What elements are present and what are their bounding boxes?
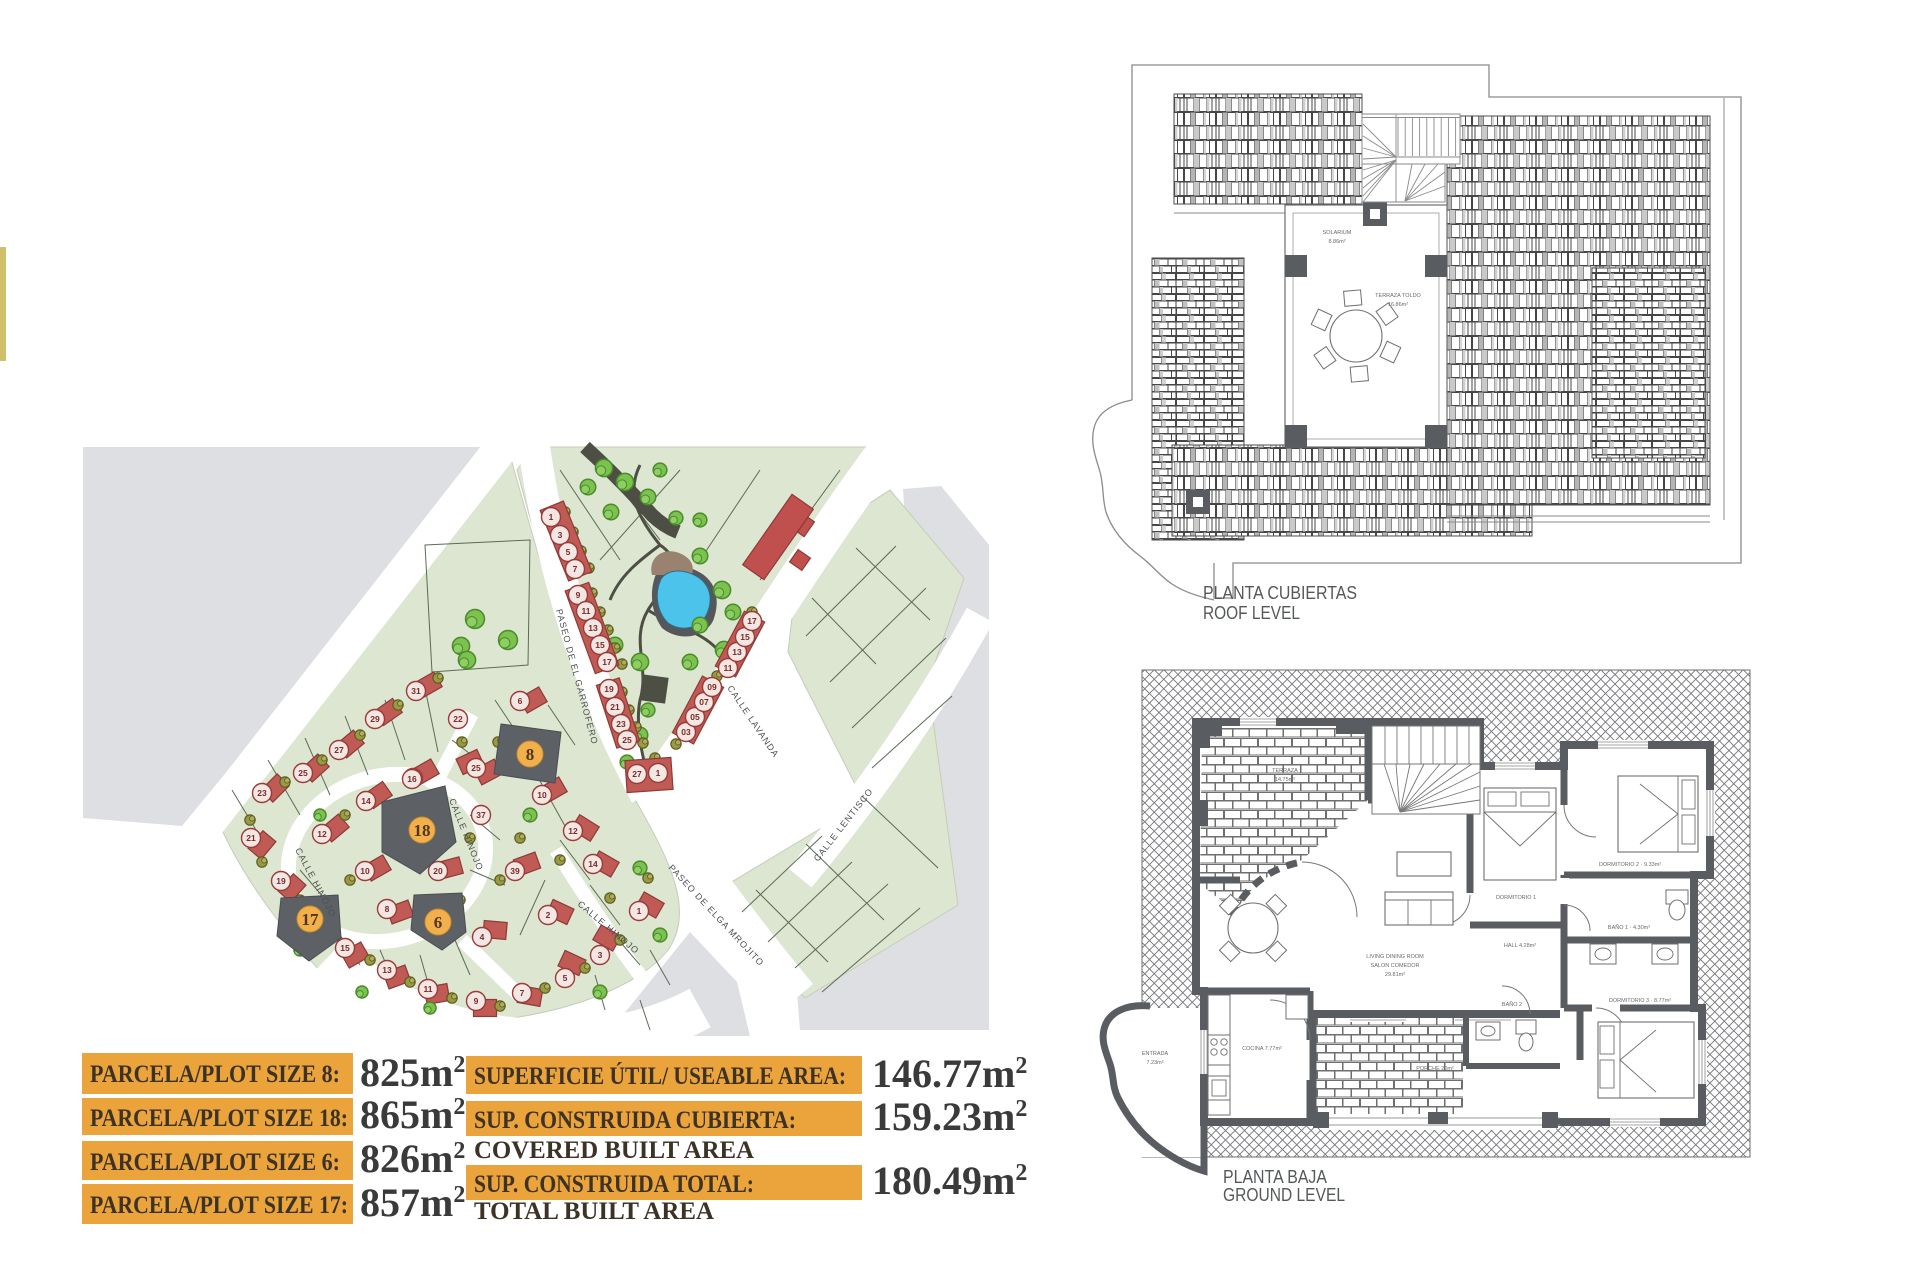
svg-text:29.81m²: 29.81m²: [1385, 972, 1405, 978]
svg-text:8: 8: [385, 904, 390, 914]
svg-text:22: 22: [453, 714, 463, 724]
svg-text:13: 13: [732, 647, 742, 657]
svg-text:7: 7: [573, 564, 578, 574]
svg-text:3: 3: [558, 530, 563, 540]
svg-text:COCINA 7.77m²: COCINA 7.77m²: [1242, 1046, 1282, 1052]
svg-text:23: 23: [257, 788, 267, 798]
svg-text:LIVING DINING ROOM: LIVING DINING ROOM: [1366, 954, 1424, 960]
svg-text:19: 19: [276, 876, 286, 886]
svg-text:1: 1: [637, 906, 642, 916]
svg-text:6: 6: [434, 913, 443, 932]
svg-text:14: 14: [588, 859, 598, 869]
svg-text:7.23m²: 7.23m²: [1146, 1060, 1163, 1066]
svg-text:5: 5: [563, 973, 568, 983]
svg-text:146.77m2: 146.77m2: [872, 1051, 1027, 1096]
svg-text:6: 6: [518, 696, 523, 706]
svg-text:20: 20: [433, 866, 443, 876]
svg-text:19: 19: [604, 684, 614, 694]
svg-text:PLANTA BAJA: PLANTA BAJA: [1223, 1167, 1327, 1187]
svg-text:13: 13: [382, 965, 392, 975]
svg-text:10: 10: [537, 790, 547, 800]
svg-text:09: 09: [707, 682, 717, 692]
svg-text:15: 15: [740, 632, 750, 642]
svg-text:39: 39: [510, 866, 520, 876]
svg-text:13: 13: [588, 623, 598, 633]
svg-text:31: 31: [411, 686, 421, 696]
svg-text:15: 15: [595, 640, 605, 650]
svg-text:5: 5: [566, 547, 571, 557]
svg-text:COVERED BUILT AREA: COVERED BUILT AREA: [474, 1137, 754, 1164]
svg-text:17: 17: [302, 910, 320, 929]
svg-text:825m2: 825m2: [360, 1050, 465, 1095]
svg-text:159.23m2: 159.23m2: [872, 1094, 1027, 1139]
svg-text:TERRAZA TOLDO: TERRAZA TOLDO: [1375, 293, 1421, 299]
svg-text:BAÑO 2: BAÑO 2: [1502, 1001, 1522, 1008]
svg-text:865m2: 865m2: [360, 1092, 465, 1137]
svg-text:ROOF LEVEL: ROOF LEVEL: [1203, 603, 1300, 623]
svg-text:05: 05: [690, 712, 700, 722]
svg-text:DORMITORIO 3 · 8.77m²: DORMITORIO 3 · 8.77m²: [1609, 998, 1671, 1004]
svg-text:21: 21: [610, 702, 620, 712]
svg-text:GROUND LEVEL: GROUND LEVEL: [1223, 1185, 1345, 1205]
svg-text:17: 17: [747, 616, 757, 626]
svg-text:PARCELA/PLOT SIZE 8:: PARCELA/PLOT SIZE 8:: [90, 1061, 340, 1088]
svg-text:12: 12: [568, 826, 578, 836]
svg-text:180.49m2: 180.49m2: [872, 1158, 1027, 1203]
svg-text:PARCELA/PLOT SIZE 18:: PARCELA/PLOT SIZE 18:: [90, 1105, 348, 1132]
svg-text:SALON COMEDOR: SALON COMEDOR: [1371, 963, 1420, 969]
svg-text:17: 17: [602, 657, 612, 667]
svg-text:37: 37: [476, 810, 486, 820]
svg-text:8.86m²: 8.86m²: [1328, 239, 1345, 245]
svg-text:21: 21: [246, 833, 256, 843]
svg-text:7: 7: [520, 988, 525, 998]
svg-text:25: 25: [298, 768, 308, 778]
svg-text:826m2: 826m2: [360, 1136, 465, 1181]
svg-text:9: 9: [474, 996, 479, 1006]
svg-text:11: 11: [582, 606, 591, 616]
svg-text:16: 16: [407, 774, 417, 784]
svg-text:18: 18: [414, 821, 431, 840]
svg-text:3: 3: [598, 950, 603, 960]
svg-text:SUP. CONSTRUIDA CUBIERTA:: SUP. CONSTRUIDA CUBIERTA:: [474, 1107, 796, 1134]
svg-text:2: 2: [546, 910, 551, 920]
svg-text:1: 1: [549, 512, 554, 522]
svg-text:PARCELA/PLOT SIZE 6:: PARCELA/PLOT SIZE 6:: [90, 1149, 340, 1176]
svg-text:4: 4: [480, 932, 485, 942]
svg-text:1: 1: [656, 768, 661, 778]
svg-text:ENTRADA: ENTRADA: [1142, 1051, 1169, 1057]
svg-text:27: 27: [632, 769, 642, 779]
svg-text:TERRAZA: TERRAZA: [1272, 768, 1298, 774]
svg-text:25: 25: [622, 735, 632, 745]
svg-text:PORCHE 20m²: PORCHE 20m²: [1416, 1066, 1454, 1072]
svg-text:9: 9: [576, 590, 581, 600]
svg-text:25: 25: [471, 763, 481, 773]
svg-text:SUP. CONSTRUIDA TOTAL:: SUP. CONSTRUIDA TOTAL:: [474, 1171, 754, 1198]
svg-text:03: 03: [681, 727, 691, 737]
svg-text:8: 8: [526, 745, 535, 764]
svg-text:TOTAL BUILT AREA: TOTAL BUILT AREA: [474, 1198, 714, 1225]
svg-text:11: 11: [424, 984, 433, 994]
svg-text:10: 10: [360, 866, 370, 876]
svg-text:15: 15: [340, 943, 350, 953]
svg-text:DORMITORIO 2 · 9.33m²: DORMITORIO 2 · 9.33m²: [1599, 862, 1661, 868]
svg-text:07: 07: [699, 697, 709, 707]
svg-text:16.86m²: 16.86m²: [1388, 302, 1408, 308]
svg-text:DORMITORIO 1: DORMITORIO 1: [1496, 895, 1536, 901]
svg-text:SOLARIUM: SOLARIUM: [1323, 230, 1352, 236]
svg-text:27: 27: [334, 745, 344, 755]
svg-text:11: 11: [724, 663, 733, 673]
svg-text:23: 23: [616, 719, 626, 729]
svg-text:14.75m²: 14.75m²: [1275, 777, 1295, 783]
svg-text:BAÑO 1 · 4.30m²: BAÑO 1 · 4.30m²: [1608, 924, 1650, 931]
svg-text:12: 12: [317, 829, 327, 839]
svg-text:SUPERFICIE ÚTIL/ USEABLE AREA:: SUPERFICIE ÚTIL/ USEABLE AREA:: [474, 1062, 846, 1090]
svg-text:PLANTA CUBIERTAS: PLANTA CUBIERTAS: [1203, 583, 1357, 603]
svg-text:29: 29: [370, 714, 380, 724]
svg-text:HALL 4.28m²: HALL 4.28m²: [1504, 943, 1536, 949]
svg-text:857m2: 857m2: [360, 1180, 465, 1225]
svg-text:PARCELA/PLOT SIZE 17:: PARCELA/PLOT SIZE 17:: [90, 1192, 348, 1219]
svg-text:14: 14: [361, 796, 371, 806]
